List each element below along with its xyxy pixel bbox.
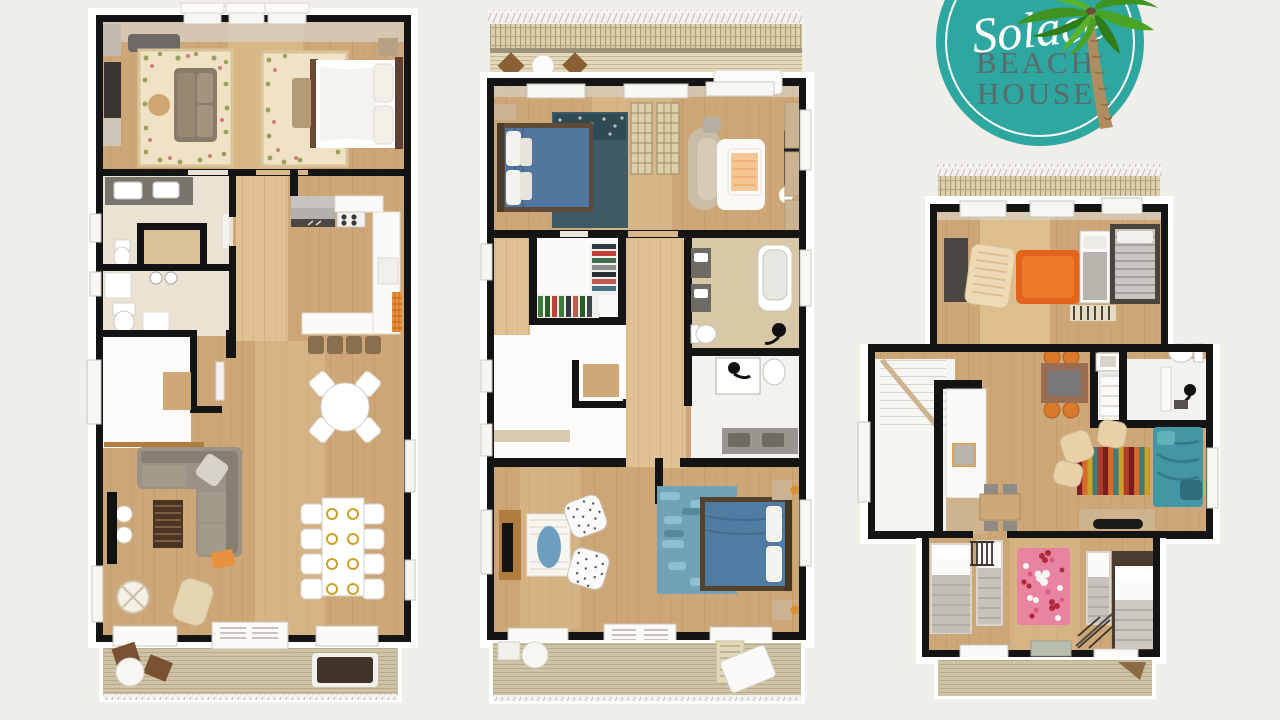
svg-text:HOUSE: HOUSE bbox=[977, 76, 1095, 111]
